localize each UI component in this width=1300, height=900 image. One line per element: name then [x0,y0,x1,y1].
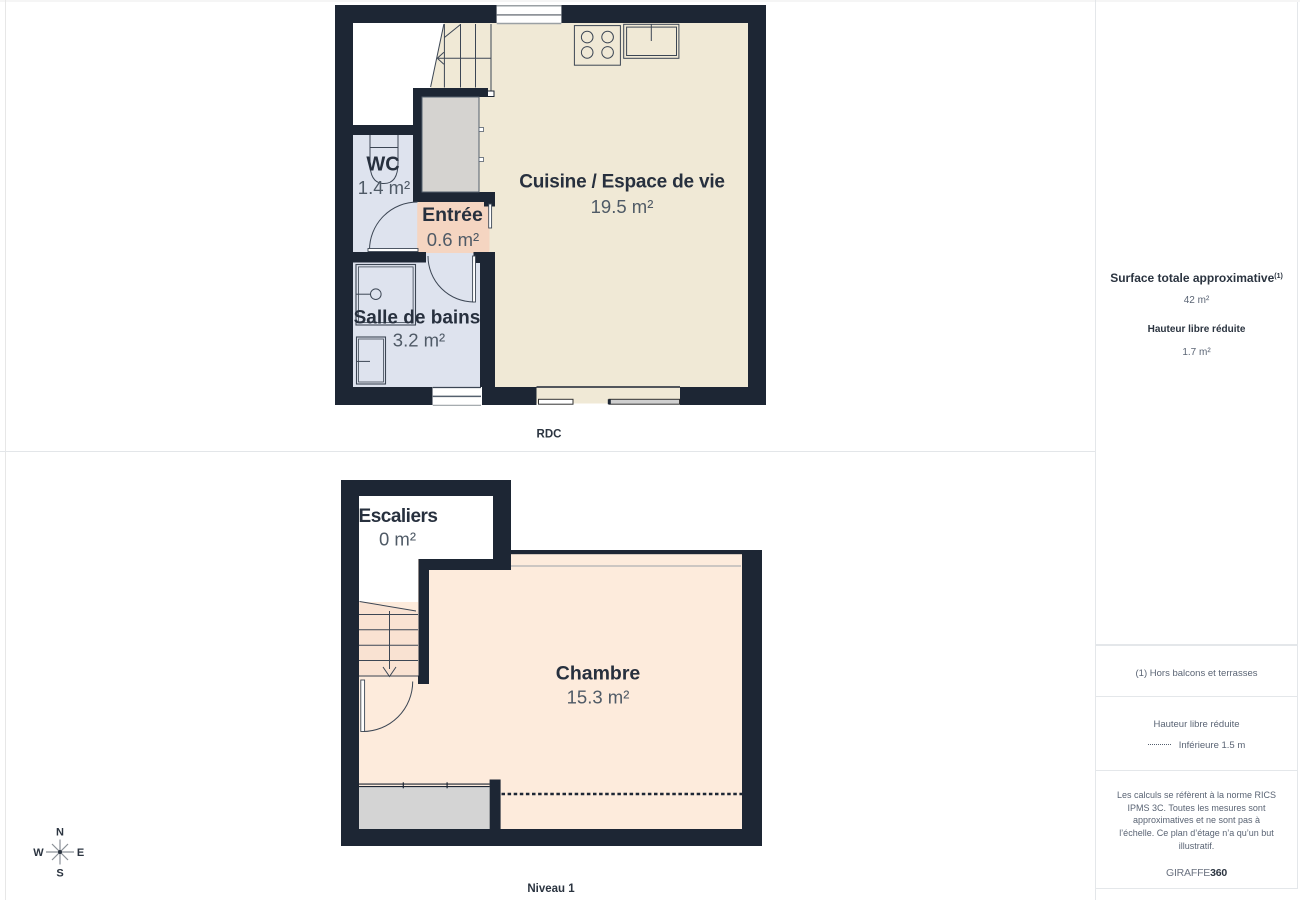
svg-text:15.3 m²: 15.3 m² [567,687,630,708]
svg-text:0 m²: 0 m² [379,529,416,550]
svg-text:3.2 m²: 3.2 m² [393,330,445,351]
svg-text:W: W [33,847,44,859]
svg-text:E: E [77,847,84,859]
svg-text:Salle de bains: Salle de bains [354,308,481,329]
svg-text:Cuisine / Espace de vie: Cuisine / Espace de vie [519,172,725,193]
svg-text:19.5 m²: 19.5 m² [591,196,654,217]
svg-text:Escaliers: Escaliers [359,506,438,527]
svg-text:S: S [56,868,63,880]
svg-text:1.4 m²: 1.4 m² [358,177,410,198]
svg-text:N: N [56,827,64,839]
svg-text:WC: WC [366,154,399,176]
svg-text:Chambre: Chambre [556,663,641,685]
svg-text:0.6 m²: 0.6 m² [427,229,479,250]
svg-text:RDC: RDC [537,429,562,441]
svg-text:Entrée: Entrée [422,204,483,226]
svg-text:Niveau 1: Niveau 1 [527,883,575,895]
